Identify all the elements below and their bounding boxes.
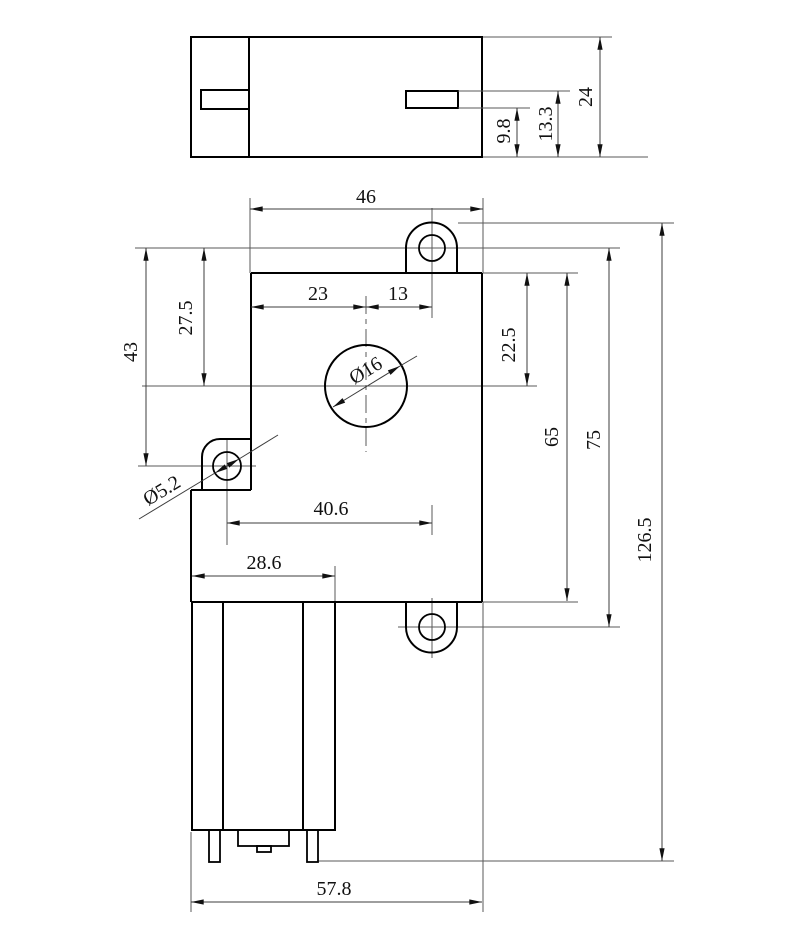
dim-46: 46 xyxy=(356,186,376,208)
drawing-page: 24 13.3 9.8 xyxy=(0,0,800,950)
motor-body xyxy=(192,602,335,862)
dim-28-6: 28.6 xyxy=(247,552,282,574)
gearbox-side-outline xyxy=(191,37,482,157)
left-mounting-slot xyxy=(201,90,249,109)
engineering-drawing: 24 13.3 9.8 xyxy=(0,0,800,950)
front-view-dimension-texts: 46 23 13 27.5 43 22.5 65 75 126.5 40.6 2… xyxy=(120,186,656,900)
motor-can-outline xyxy=(192,602,335,830)
motor-terminal-right xyxy=(307,830,318,862)
dim-57-8: 57.8 xyxy=(317,878,352,900)
dim-65: 65 xyxy=(541,427,563,447)
front-view: 46 23 13 27.5 43 22.5 65 75 126.5 40.6 2… xyxy=(120,186,674,912)
dim-24: 24 xyxy=(575,87,597,107)
dim-40-6: 40.6 xyxy=(314,498,349,520)
dim-126-5: 126.5 xyxy=(634,518,656,563)
motor-terminal-left xyxy=(209,830,220,862)
front-view-extension-lines xyxy=(135,198,674,912)
dim-23: 23 xyxy=(308,283,328,305)
dim-43: 43 xyxy=(120,342,142,362)
motor-end-cap-nub xyxy=(257,846,271,852)
top-view-dimensions: 24 13.3 9.8 xyxy=(493,37,600,157)
dim-27-5: 27.5 xyxy=(175,301,197,336)
gearbox-body xyxy=(191,273,482,602)
dim-22-5: 22.5 xyxy=(498,328,520,363)
motor-end-cap xyxy=(238,830,289,846)
dim-9-8: 9.8 xyxy=(493,119,515,144)
top-view-outline xyxy=(191,37,482,157)
dim-75: 75 xyxy=(583,430,605,450)
top-view: 24 13.3 9.8 xyxy=(191,37,648,157)
front-view-dimensions xyxy=(139,209,662,902)
dim-shaft-dia: Ø16 xyxy=(345,353,386,390)
dim-13: 13 xyxy=(388,283,408,305)
right-mounting-slot xyxy=(406,91,458,108)
dim-13-3: 13.3 xyxy=(535,107,557,142)
